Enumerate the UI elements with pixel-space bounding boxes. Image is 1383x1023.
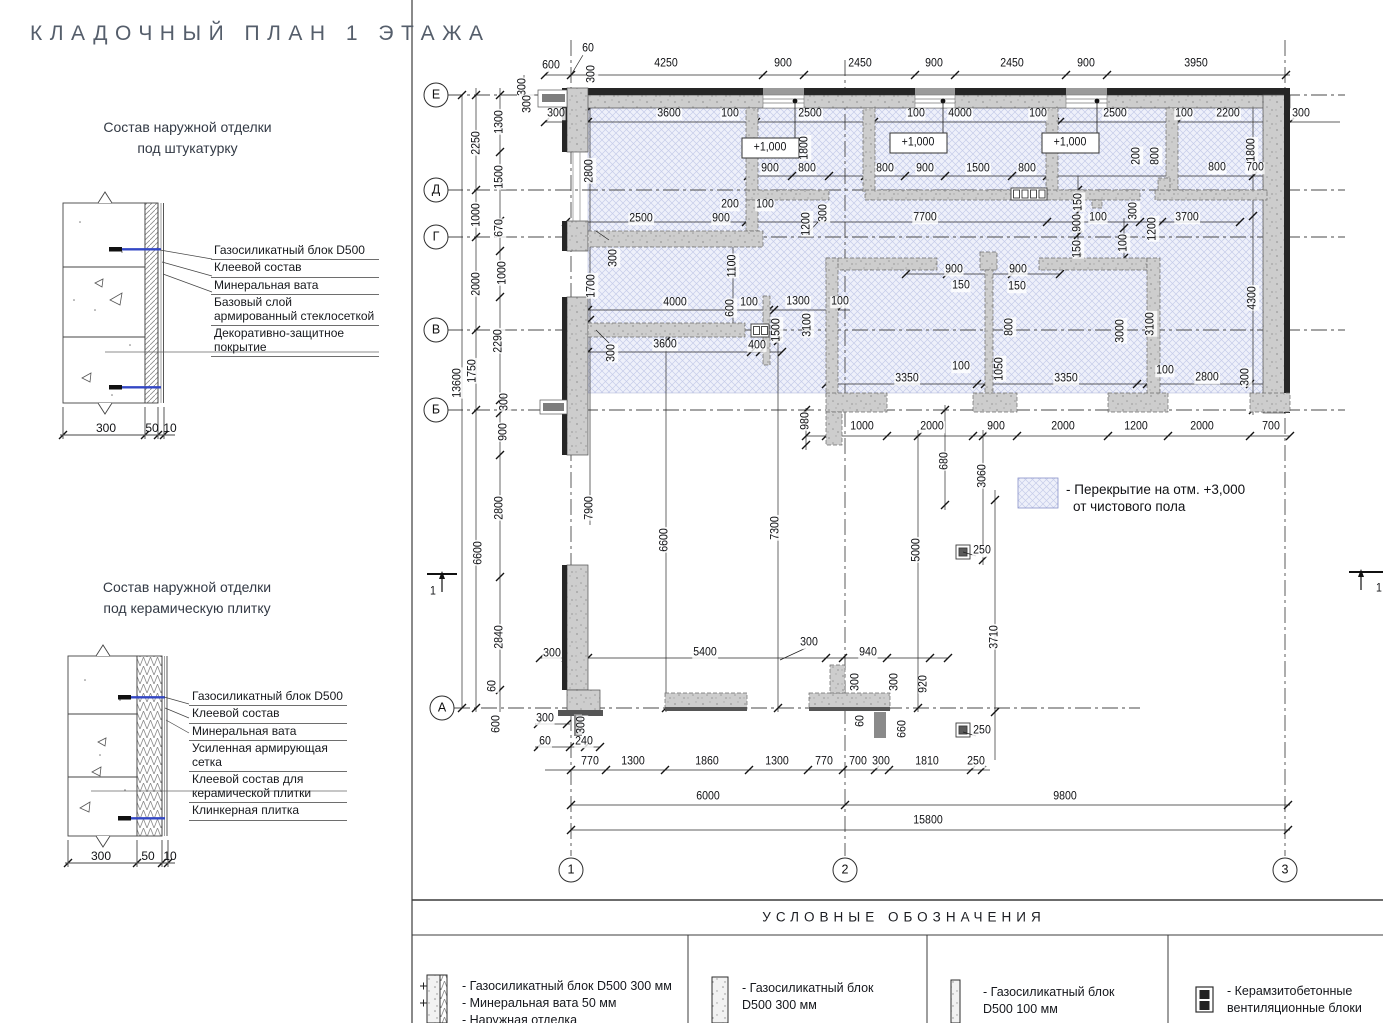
text-line: D500 300 мм <box>742 997 874 1014</box>
legend-hatch-swatch <box>1018 478 1058 508</box>
detail-stucco-layer-list: Газосиликатный блок D500Клеевой составМи… <box>211 243 379 357</box>
vent-block-icon <box>1011 188 1047 200</box>
window-icon <box>915 88 955 108</box>
slab-note-line: от чистового пола <box>1066 498 1245 515</box>
axis-bubble-2: 2 <box>833 858 858 883</box>
text-line: - Наружная отделка <box>462 1012 672 1023</box>
axis-bubble-А: А <box>430 696 455 721</box>
detail-title-line: Состав наружной отделки <box>76 577 298 598</box>
axis-bubble-Г: Г <box>424 225 449 250</box>
detail-title-line: Состав наружной отделки <box>80 117 295 138</box>
legend-item-text: - Газосиликатный блок D500 100 мм <box>983 984 1115 1018</box>
text-line: вентиляционные блоки <box>1227 1000 1362 1017</box>
window-icon <box>763 88 804 108</box>
text-line: - Газосиликатный блок D500 300 мм <box>462 978 672 995</box>
text-line: Газосиликатный блок D500 <box>211 243 379 260</box>
wall-base-strips <box>574 707 890 738</box>
legend-item-text: - Газосиликатный блок D500 300 мм <box>742 980 874 1014</box>
slab-note: - Перекрытие на отм. +3,000 от чистового… <box>1066 481 1245 515</box>
floor-slab-hatch <box>588 108 1267 508</box>
axis-bubble-1: 1 <box>559 858 584 883</box>
text-line: Базовый слой армированный стеклосеткой <box>211 295 379 326</box>
detail-stucco-title: Состав наружной отделки под штукатурку <box>80 117 295 159</box>
window-icon <box>1066 88 1107 108</box>
legend-item-text: - Газосиликатный блок D500 300 мм- Минер… <box>462 978 672 1023</box>
text-line: - Газосиликатный блок <box>983 984 1115 1001</box>
section-mark-left <box>427 571 457 592</box>
text-line: Минеральная вата <box>211 278 379 295</box>
drawing-sheet: КЛАДОЧНЫЙ ПЛАН 1 ЭТАЖА Состав наружной о… <box>0 0 1383 1023</box>
axis-bubble-Б: Б <box>424 398 449 423</box>
text-line: Усиленная армирующая сетка <box>189 741 347 772</box>
detail-title-line: под керамическую плитку <box>76 598 298 619</box>
axis-bubble-3: 3 <box>1273 858 1298 883</box>
detail-dim: 300 <box>91 849 111 863</box>
masonry-block-300-icon <box>712 977 728 1023</box>
window-icon <box>540 400 567 414</box>
text-line: Клеевой состав для керамической плитки <box>189 772 347 803</box>
legend-item-text: - Керамзитобетонные вентиляционные блоки <box>1227 983 1362 1017</box>
text-line: Клеевой состав <box>211 260 379 277</box>
detail-title-line: под штукатурку <box>80 138 295 159</box>
slab-note-line: - Перекрытие на отм. +3,000 <box>1066 481 1245 498</box>
legend-header: УСЛОВНЫЕ ОБОЗНАЧЕНИЯ <box>762 910 1045 925</box>
text-line: D500 100 мм <box>983 1001 1115 1018</box>
window-icon <box>573 152 580 221</box>
text-line: - Минеральная вата 50 мм <box>462 995 672 1012</box>
axis-bubble-В: В <box>424 318 449 343</box>
vent-block-icon <box>956 723 970 737</box>
text-line: Газосиликатный блок D500 <box>189 689 347 706</box>
vent-block-icon <box>751 324 769 337</box>
text-line: Клеевой состав <box>189 706 347 723</box>
text-line: Минеральная вата <box>189 724 347 741</box>
text-line: Клинкерная плитка <box>189 803 347 820</box>
detail-tile-layer-list: Газосиликатный блок D500Клеевой составМи… <box>189 689 347 821</box>
detail-tile-title: Состав наружной отделки под керамическую… <box>76 577 298 619</box>
section-mark-right <box>1349 569 1383 590</box>
text-line: - Керамзитобетонные <box>1227 983 1362 1000</box>
page-title: КЛАДОЧНЫЙ ПЛАН 1 ЭТАЖА <box>30 22 491 46</box>
masonry-block-100-icon <box>951 980 960 1023</box>
axis-bubble-Е: Е <box>424 83 449 108</box>
masonry-insulated-wall-icon <box>420 975 447 1023</box>
text-line: Декоративно-защитное покрытие <box>211 326 379 357</box>
detail-dim: 10 <box>163 849 176 863</box>
text-line: - Газосиликатный блок <box>742 980 874 997</box>
window-icon <box>538 90 567 107</box>
detail-dim: 10 <box>163 421 176 435</box>
detail-dim: 300 <box>96 421 116 435</box>
detail-dim: 50 <box>141 849 154 863</box>
detail-dim: 50 <box>145 421 158 435</box>
vent-block-icon <box>1196 987 1213 1012</box>
axis-bubble-Д: Д <box>424 178 449 203</box>
